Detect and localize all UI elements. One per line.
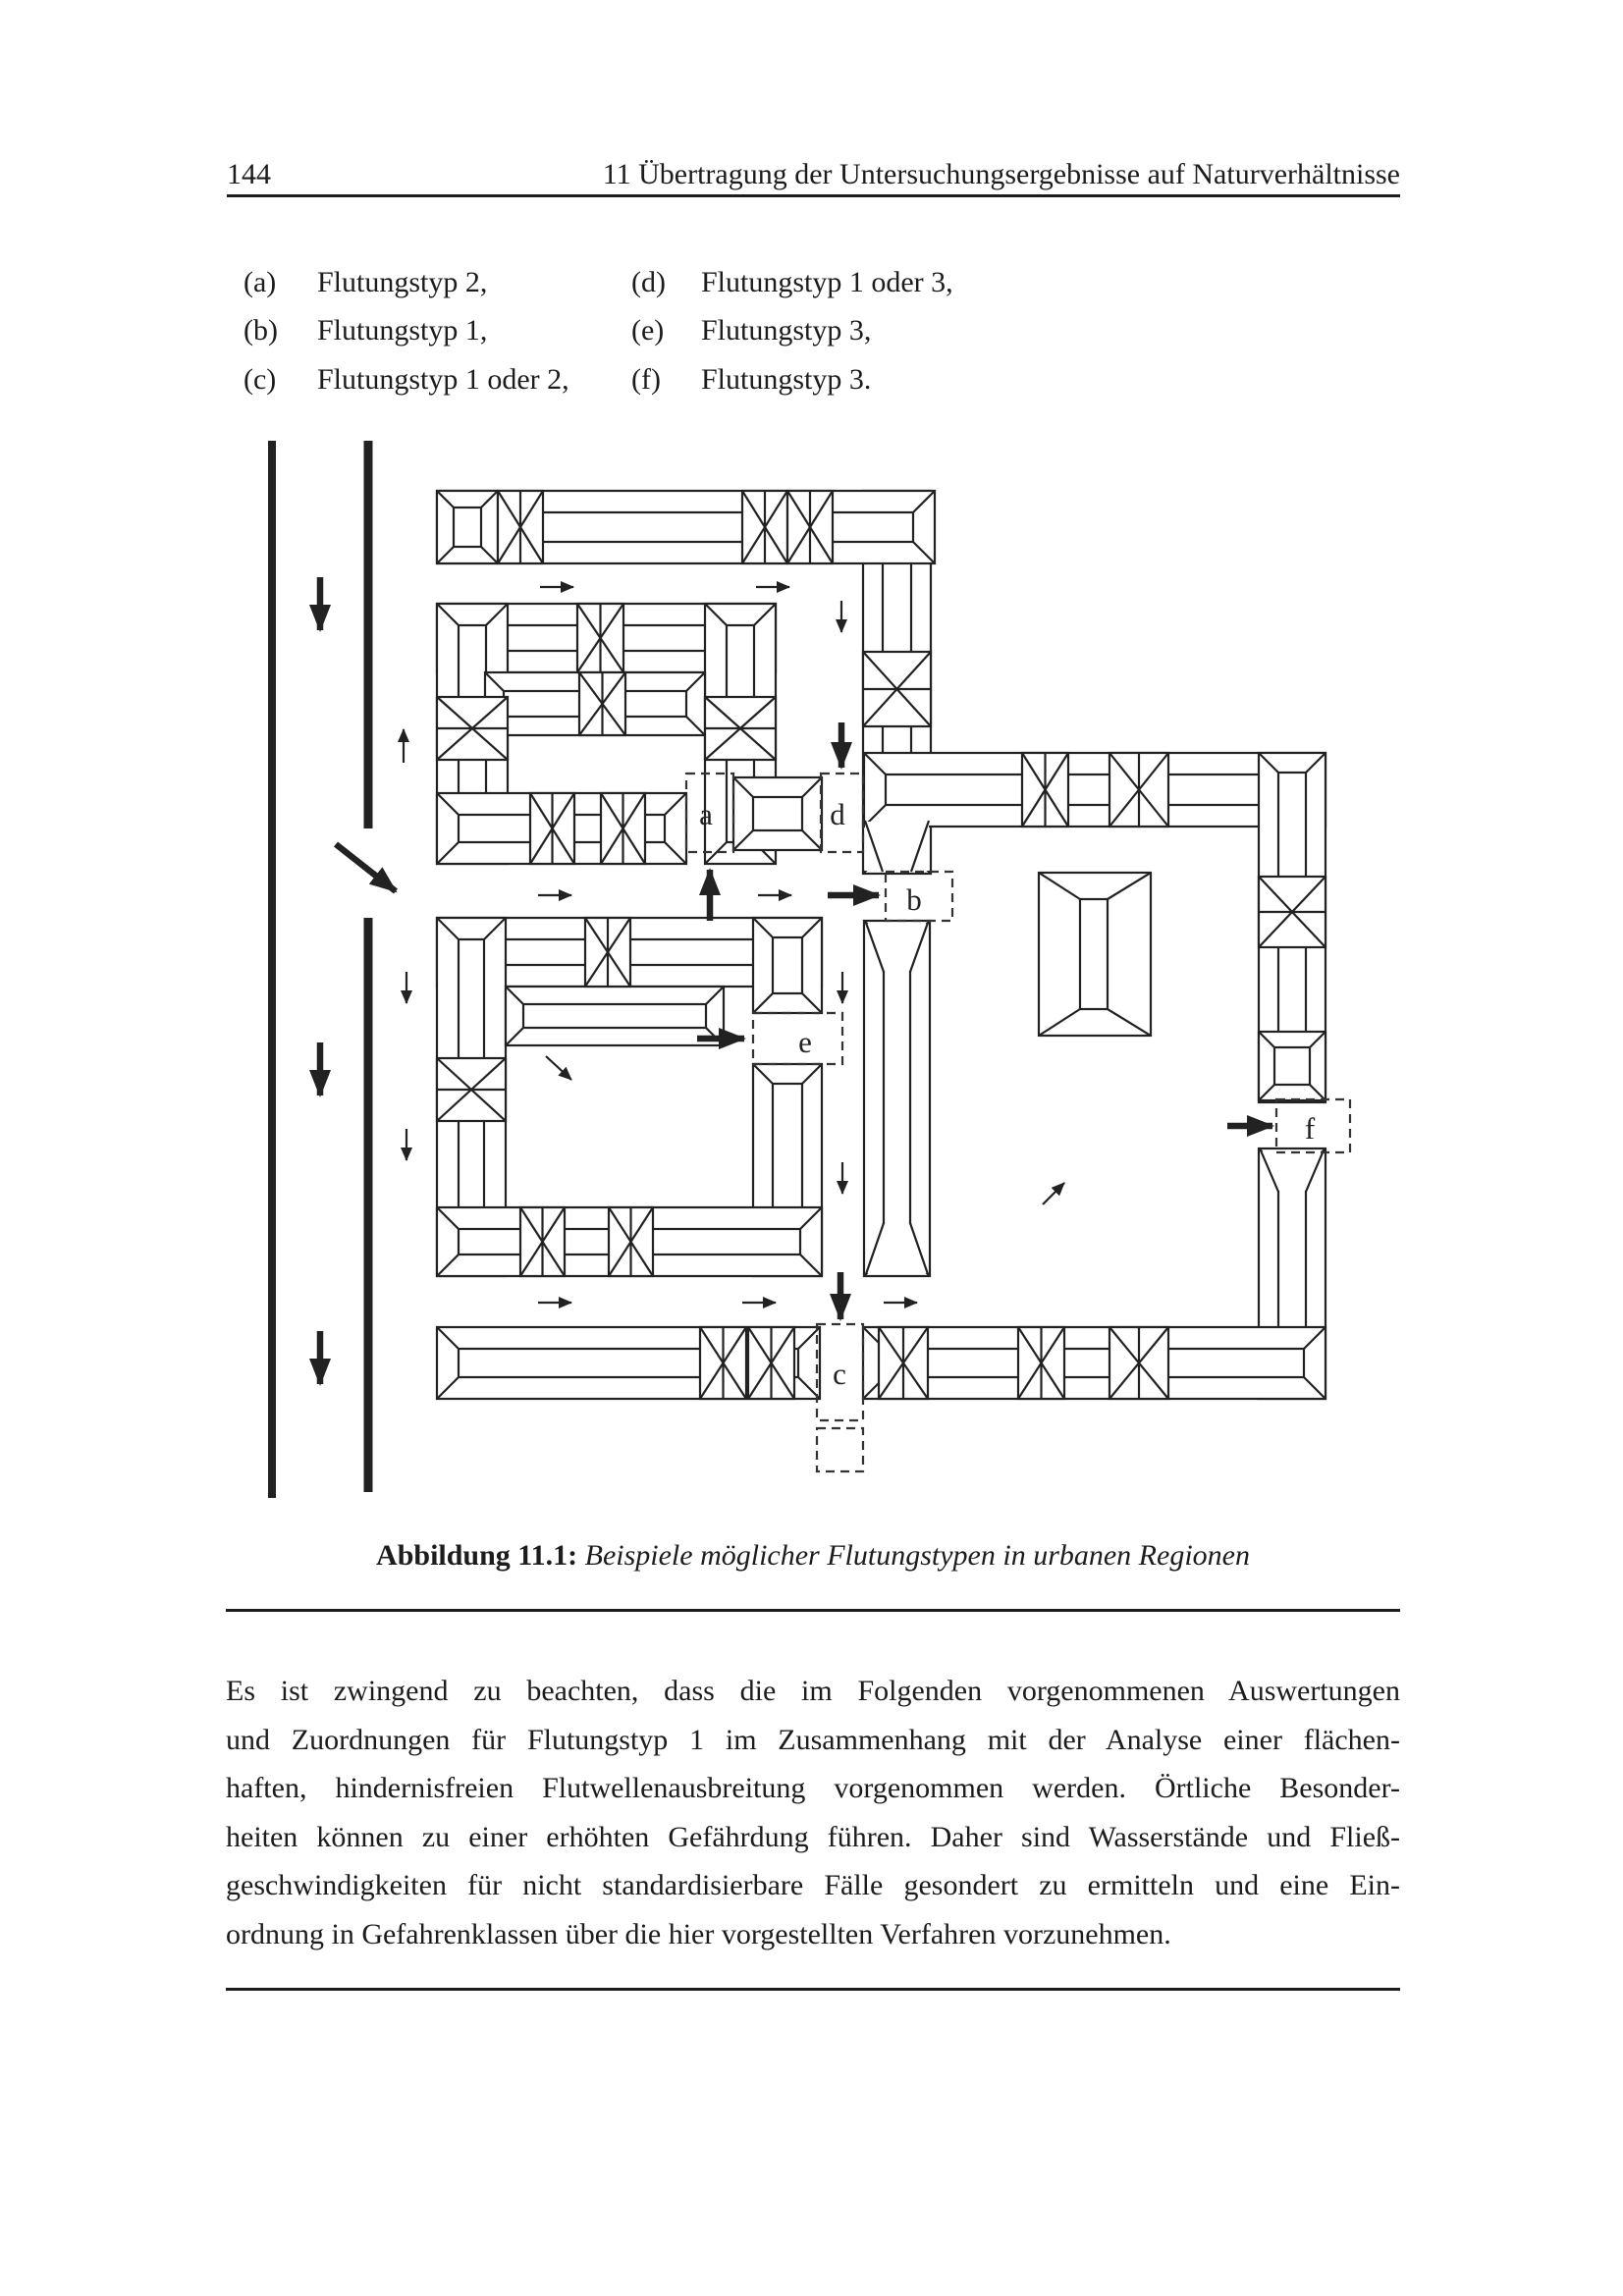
inner-building <box>1039 873 1151 1036</box>
body-line-1: Es ist zwingend zu beachten, dass die im… <box>226 1667 1400 1716</box>
flow-arrow-thick <box>336 844 396 891</box>
wall-segment <box>863 1327 1325 1399</box>
marker-letter-b: b <box>906 882 922 917</box>
marker-letter-a: a <box>699 797 713 831</box>
wall-segment <box>864 753 1325 827</box>
wall-segment <box>864 921 930 1276</box>
marker-letter-c: c <box>833 1357 846 1391</box>
caption-rule <box>226 1609 1400 1612</box>
body-paragraph: Es ist zwingend zu beachten, dass die im… <box>226 1667 1400 1959</box>
figure-caption-text: Beispiele möglicher Flutungstypen in urb… <box>585 1539 1250 1572</box>
body-line-6: ordnung in Gefahrenklassen über die hier… <box>226 1910 1400 1959</box>
figure-caption: Abbildung 11.1: Beispiele möglicher Flut… <box>226 1539 1400 1573</box>
marker-box-extra <box>817 1428 863 1471</box>
bottom-rule <box>226 1988 1400 1991</box>
wall-segment <box>753 918 822 1013</box>
wall-segment <box>437 491 498 563</box>
flow-arrow-thin <box>546 1056 571 1080</box>
flow-arrow-thin <box>1043 1183 1064 1204</box>
wall-segment <box>506 987 724 1045</box>
body-line-2: und Zuordnungen für Flutungstyp 1 im Zus… <box>226 1716 1400 1765</box>
figure-caption-label: Abbildung 11.1: <box>376 1539 577 1572</box>
body-line-5: geschwindigkeiten für nicht standardisie… <box>226 1861 1400 1910</box>
marker-letter-e: e <box>798 1025 812 1059</box>
marker-letter-f: f <box>1305 1111 1316 1146</box>
marker-letter-d: d <box>830 797 845 831</box>
wall-segment <box>733 777 822 850</box>
body-line-4: heiten können zu einer erhöhten Gefährdu… <box>226 1813 1400 1862</box>
document-page: 144 11 Übertragung der Untersuchungserge… <box>0 0 1623 2296</box>
body-line-3: haften, hindernisfreien Flutwellenausbre… <box>226 1764 1400 1813</box>
